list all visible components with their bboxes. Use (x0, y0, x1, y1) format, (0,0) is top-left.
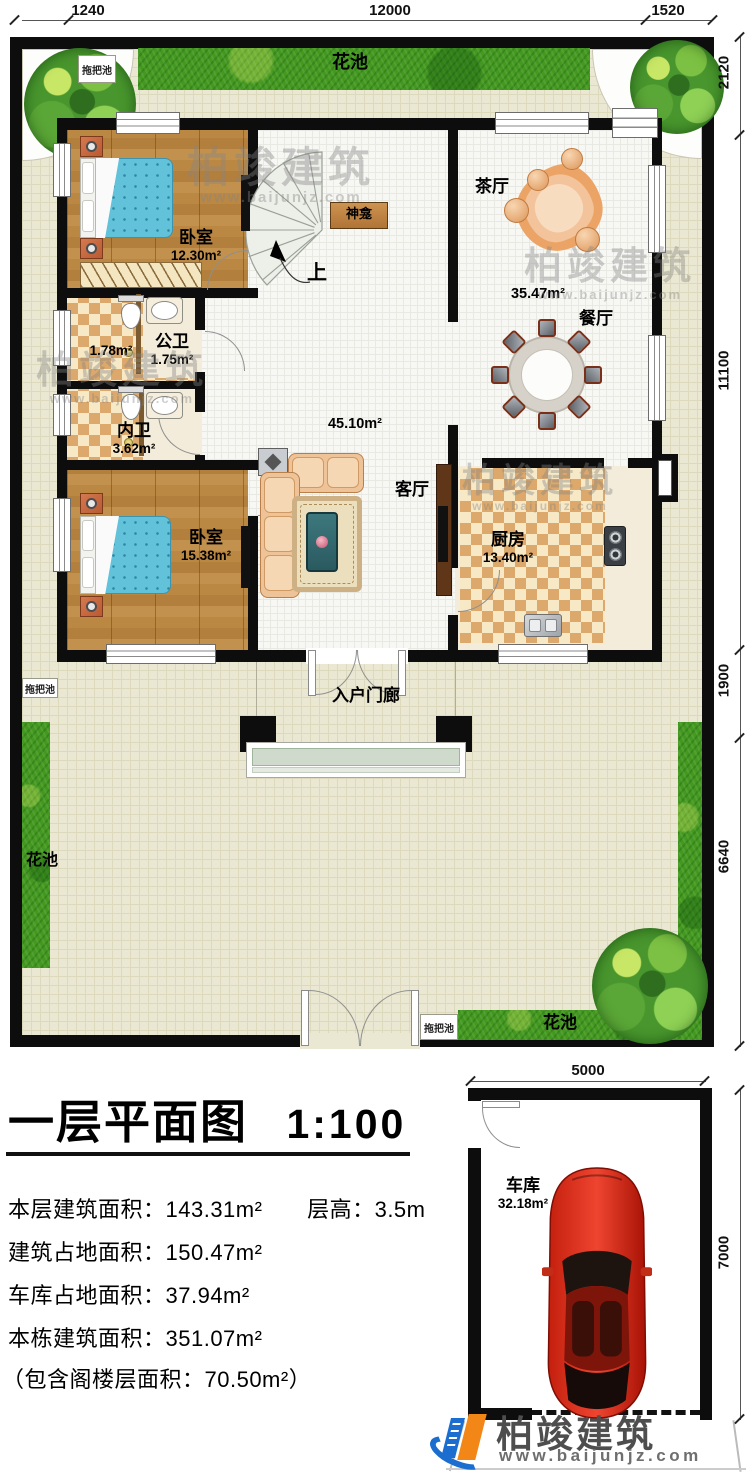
private-wc-area: 3.62m² (92, 441, 176, 457)
dim-right-2120: 2120 (716, 45, 733, 101)
window (498, 644, 588, 664)
stool (561, 148, 583, 170)
dim-top-1520: 1520 (630, 2, 706, 19)
dim-garage-7000: 7000 (716, 1225, 733, 1281)
nightstand (80, 493, 103, 514)
public-wc-name: 公卫 (130, 332, 214, 352)
logo-window (450, 1430, 458, 1432)
living-area-label: 45.10m² (310, 416, 400, 433)
stat-line-3: 车库占地面积：37.94m² (8, 1278, 250, 1310)
pillow (82, 520, 94, 551)
bedroom1-label: 卧室 12.30m² (150, 228, 242, 263)
tea-hall-label: 茶厅 (452, 177, 532, 197)
sink-basin (529, 619, 541, 632)
window (53, 394, 71, 436)
dim-top-1240: 1240 (50, 2, 126, 19)
garage-wall-left-stub (468, 1088, 481, 1101)
bed-sheet (96, 516, 126, 594)
dim-right-1900: 1900 (716, 653, 733, 709)
logo-window (449, 1437, 457, 1439)
pillow (82, 162, 94, 194)
dining-chair (538, 319, 556, 337)
sofa-cushion (264, 516, 295, 552)
porch-label: 入户门廊 (300, 686, 432, 706)
sink (146, 297, 183, 324)
dining-table-top (521, 349, 573, 401)
stairs-up-label: 上 (302, 262, 332, 285)
bedroom1-area: 12.30m² (150, 248, 242, 264)
logo-window (447, 1444, 455, 1446)
porch-steps (246, 742, 466, 778)
wall-bath-right-b (195, 372, 205, 412)
floor-plan-canvas: 1240 12000 1520 花池 花池 花池 拖把池 拖把池 拖把池 (0, 0, 750, 1477)
dim-right-6640: 6640 (716, 829, 733, 885)
tv (241, 175, 250, 231)
stove (604, 526, 626, 566)
sofa-cushion (327, 457, 359, 488)
porch-step (252, 767, 460, 773)
dim-top-12000: 12000 (340, 2, 440, 19)
sofa-cushion (264, 555, 295, 591)
sofa-cushion (264, 477, 295, 513)
flue-inner (658, 460, 672, 496)
gate-leaf (411, 990, 419, 1046)
dim-garage-5000: 5000 (548, 1062, 628, 1079)
dining-label: 餐厅 (556, 309, 636, 329)
dining-chair (584, 366, 602, 384)
living-label: 客厅 (372, 480, 452, 500)
flower-bed-bottom-label: 花池 (528, 1013, 592, 1033)
porch-step (252, 748, 460, 766)
garage-dim-line (470, 1081, 706, 1082)
wall-hall-dining (448, 130, 458, 322)
dining-chair (491, 366, 509, 384)
stat-floor-height: 层高：3.5m (307, 1197, 425, 1222)
garage-right-dim-line (740, 1090, 741, 1420)
toilet-tank (118, 386, 144, 393)
wall-hall-dining-b (448, 425, 458, 468)
sink (146, 392, 183, 419)
garage-door-leaf (482, 1101, 520, 1108)
table-flowers (316, 536, 328, 548)
brand-logo: 柏竣建筑 www.baijunjz.com (432, 1408, 744, 1470)
brand-url: www.baijunjz.com (499, 1446, 702, 1466)
window (53, 310, 71, 366)
dim-tick (9, 15, 20, 26)
garage-door-arc (482, 1108, 520, 1148)
window (648, 165, 666, 253)
burner (609, 531, 622, 544)
wall-kitchen-left-b (448, 615, 458, 650)
logo-window (452, 1423, 460, 1425)
kitchen-area: 13.40m² (462, 550, 554, 566)
kitchen-name: 厨房 (462, 530, 554, 550)
bedroom1-name: 卧室 (150, 228, 242, 248)
drawing-scale: 1:100 (286, 1101, 406, 1147)
garage-area: 32.18m² (478, 1196, 568, 1212)
porch-line (256, 662, 257, 718)
stool (504, 198, 529, 223)
window (53, 498, 71, 572)
dim-right-11100: 11100 (716, 339, 733, 403)
window (53, 143, 71, 197)
stat-floor-area: 本层建筑面积：143.31m² (8, 1197, 262, 1222)
private-wc-label: 内卫 3.62m² (92, 421, 176, 456)
stool (575, 227, 600, 252)
window (495, 112, 589, 134)
title-row: 一层平面图 1:100 (8, 1086, 406, 1152)
nightstand (80, 596, 103, 617)
wall-kitchen-top (482, 458, 604, 468)
title-underline (6, 1152, 410, 1156)
flower-bed-left-label: 花池 (16, 852, 68, 870)
wall-left (57, 118, 67, 662)
public-wc-label: 公卫 1.75m² (130, 332, 214, 367)
window (106, 644, 216, 664)
mop-pool-bottom: 拖把池 (420, 1014, 458, 1040)
garage-wall-right (700, 1088, 712, 1420)
wall-kitchen-top-stub (628, 458, 652, 468)
right-dim-line (740, 37, 741, 1047)
garage-name: 车库 (478, 1176, 568, 1196)
pillow (82, 557, 94, 588)
stat-line-1: 本层建筑面积：143.31m² 层高：3.5m (8, 1192, 426, 1224)
public-wc-area: 1.75m² (130, 352, 214, 368)
gate-leaf (301, 990, 309, 1046)
window (648, 335, 666, 421)
garage-label: 车库 32.18m² (478, 1176, 568, 1211)
mop-pool-left: 拖把池 (22, 678, 58, 698)
porch-line (455, 662, 456, 718)
sink-basin (545, 619, 557, 632)
bedroom2-name: 卧室 (160, 528, 252, 548)
stat-line-4: 本栋建筑面积：351.07m² (8, 1321, 262, 1353)
burner (609, 548, 622, 561)
stat-line-5: （包含阁楼层面积：70.50m²） (2, 1362, 311, 1394)
kitchen-sink (524, 614, 562, 637)
bedroom2-label: 卧室 15.38m² (160, 528, 252, 563)
window (612, 108, 658, 138)
tv (438, 506, 448, 562)
mop-pool-top: 拖把池 (78, 55, 116, 83)
wardrobe (80, 262, 202, 288)
bedroom2-area: 15.38m² (160, 548, 252, 564)
wall-bath-right-a (195, 288, 205, 330)
garage-wall-top (468, 1088, 712, 1100)
top-dim-line (22, 20, 712, 21)
nightstand (80, 238, 103, 259)
brand-logo-icon (432, 1412, 490, 1466)
nightstand (80, 136, 103, 157)
tree-icon (592, 928, 708, 1044)
flower-bed-top-label: 花池 (300, 52, 400, 73)
private-wc-name: 内卫 (92, 421, 176, 441)
window (116, 112, 180, 134)
pillow (82, 200, 94, 232)
wall-bedroom2-top (67, 460, 258, 470)
bed-sheet (96, 158, 126, 238)
shrine-label: 神龛 (330, 207, 388, 222)
page-title: 一层平面图 (8, 1096, 248, 1148)
dining-chair (538, 412, 556, 430)
flower-bed-left (22, 722, 50, 968)
toilet-tank (118, 295, 144, 302)
dining-area-label: 35.47m² (492, 286, 584, 303)
kitchen-label: 厨房 13.40m² (462, 530, 554, 565)
stat-line-2: 建筑占地面积：150.47m² (8, 1235, 262, 1267)
